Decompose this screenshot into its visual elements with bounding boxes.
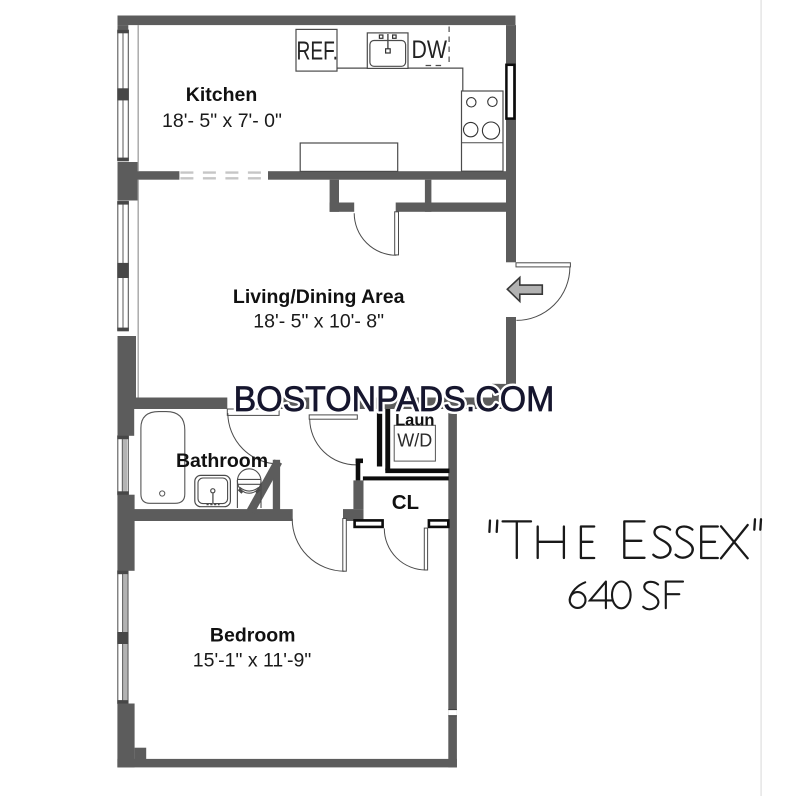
svg-text:18'- 5" x 7'- 0": 18'- 5" x 7'- 0" — [162, 110, 282, 132]
svg-text:18'- 5" x 10'- 8": 18'- 5" x 10'- 8" — [253, 311, 384, 333]
svg-text:REF.: REF. — [297, 36, 339, 66]
svg-text:Bedroom: Bedroom — [210, 625, 296, 647]
svg-text:Living/Dining Area: Living/Dining Area — [233, 286, 405, 308]
svg-text:DW: DW — [412, 36, 448, 64]
svg-text:BOSTONPADS.COM: BOSTONPADS.COM — [234, 379, 555, 419]
svg-text:15'-1" x 11'-9": 15'-1" x 11'-9" — [193, 649, 312, 671]
svg-text:Bathroom: Bathroom — [176, 450, 268, 472]
svg-text:W/D: W/D — [397, 431, 432, 451]
svg-text:Kitchen: Kitchen — [186, 84, 258, 106]
svg-text:CL: CL — [392, 491, 419, 514]
